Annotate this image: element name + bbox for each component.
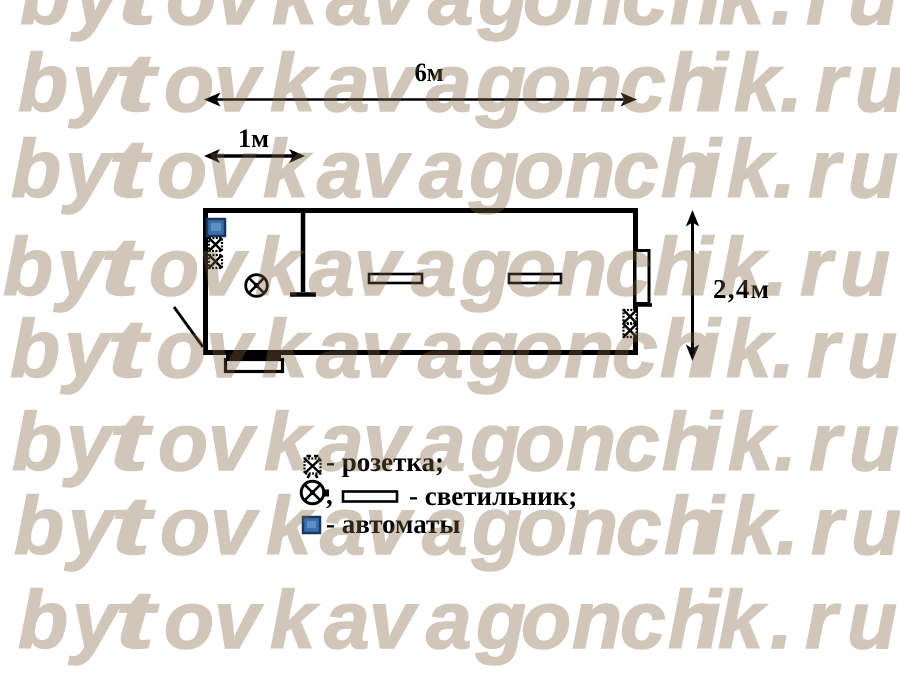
- svg-text:by: by: [20, 0, 124, 42]
- svg-text:by: by: [18, 575, 122, 666]
- svg-text:by: by: [11, 124, 115, 215]
- svg-text:t: t: [100, 221, 144, 313]
- svg-text:t: t: [108, 123, 152, 215]
- svg-text:by: by: [10, 304, 114, 395]
- svg-text:ovkavagonchik.ru: ovkavagonchik.ru: [164, 575, 897, 666]
- svg-text:t: t: [107, 303, 151, 395]
- svg-text:ovkavagonchik.ru: ovkavagonchik.ru: [158, 397, 899, 488]
- svg-text:ovkavagonchik.ru: ovkavagonchik.ru: [157, 124, 898, 215]
- svg-text:t: t: [115, 574, 159, 666]
- svg-text:t: t: [111, 480, 155, 572]
- svg-text:ovkavagonchik.ru: ovkavagonchik.ru: [160, 481, 900, 572]
- svg-text:ovkavagonchik.ru: ovkavagonchik.ru: [166, 0, 898, 42]
- svg-text:by: by: [3, 222, 107, 313]
- svg-text:ovkavagonchik.ru: ovkavagonchik.ru: [149, 222, 890, 313]
- svg-text:ovkavagonchik.ru: ovkavagonchik.ru: [164, 38, 900, 129]
- svg-text:t: t: [117, 0, 161, 42]
- svg-text:t: t: [109, 396, 153, 488]
- svg-text:by: by: [18, 38, 122, 129]
- svg-text:t: t: [115, 37, 159, 129]
- svg-text:ovkavagonchik.ru: ovkavagonchik.ru: [156, 304, 897, 395]
- svg-text:by: by: [14, 481, 118, 572]
- svg-text:by: by: [12, 397, 116, 488]
